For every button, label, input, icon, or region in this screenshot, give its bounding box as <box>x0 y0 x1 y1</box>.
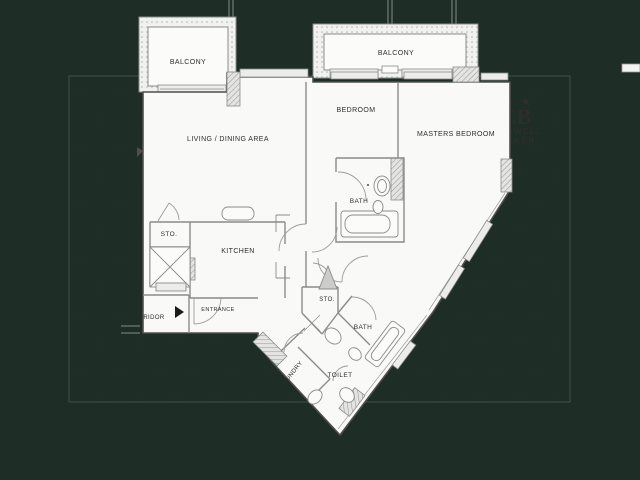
living-dining-label: LIVING / DINING AREA <box>187 136 269 143</box>
kitchen-label: KITCHEN <box>221 248 255 255</box>
floor-plan-screenshot: CB CB CB ★ ★ CB COLDWELL BANKER <box>0 0 640 480</box>
toilet-label: TOILET <box>327 372 352 379</box>
corridor-label: RIDOR <box>143 315 165 321</box>
bath-master-label: BATH <box>350 198 368 205</box>
window-bedroom-1 <box>331 72 378 79</box>
storage-lower-label: STO. <box>319 297 335 303</box>
balcony-right-label: BALCONY <box>378 50 414 57</box>
column-shaft-side <box>190 258 195 280</box>
column-masters-corner <box>501 159 512 192</box>
window-bedroom-2 <box>404 72 452 79</box>
bath-lower-label: BATH <box>354 324 372 331</box>
storage-upper-label: STO. <box>161 231 178 238</box>
window-between-balconies <box>240 69 308 77</box>
entrance-label: ENTRANCE <box>201 307 234 313</box>
balcony-right-divider <box>382 66 398 73</box>
balcony-left-floor <box>148 27 228 86</box>
bedroom-mark <box>367 184 369 186</box>
window-masters-top <box>481 73 508 80</box>
neighbor-unit-edge <box>622 64 640 72</box>
balcony-left-label: BALCONY <box>170 59 206 66</box>
kitchen-sink <box>222 207 254 220</box>
bedroom-label: BEDROOM <box>337 107 376 114</box>
column-balcony-junction <box>227 72 240 106</box>
bath-master-toilet <box>373 201 383 214</box>
masters-bedroom-label: MASTERS BEDROOM <box>417 131 495 138</box>
bath-master-sink <box>374 176 390 196</box>
column-bath-master <box>391 158 403 200</box>
column-balcony-right-end <box>453 67 479 82</box>
balcony-left <box>139 17 236 93</box>
shaft-sill <box>156 283 186 291</box>
